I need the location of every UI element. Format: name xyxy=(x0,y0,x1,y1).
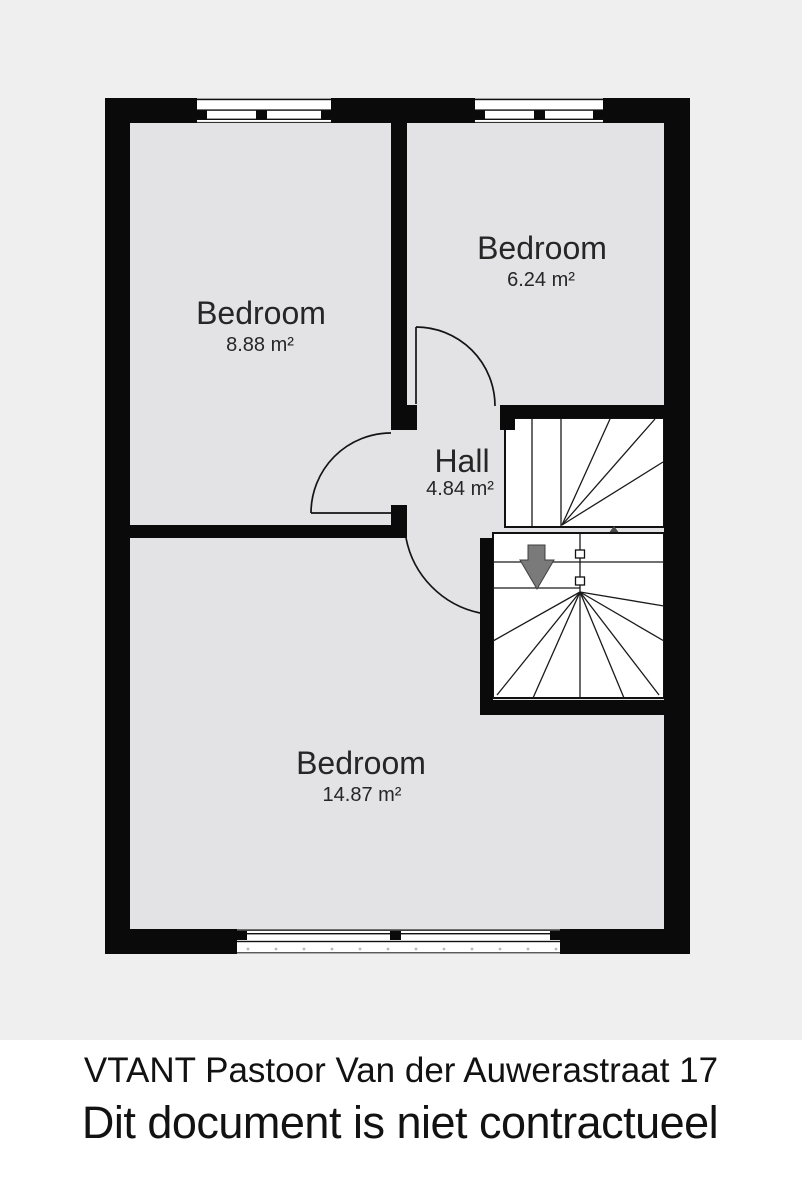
footer-disclaimer-line: Dit document is niet contractueel xyxy=(82,1097,718,1148)
room-area: 6.24 m² xyxy=(507,269,575,291)
footer-address-line: VTANT Pastoor Van der Auwerastraat 17 xyxy=(84,1051,718,1090)
room-name: Bedroom xyxy=(477,230,607,266)
window-top-left xyxy=(197,98,331,123)
floorplan-page: Bedroom 8.88 m² Bedroom 6.24 m² Hall 4.8… xyxy=(0,0,802,1200)
room-area: 14.87 m² xyxy=(323,784,402,806)
room-area: 4.84 m² xyxy=(426,478,494,500)
room-name: Hall xyxy=(434,443,489,479)
window-bottom xyxy=(237,929,560,954)
room-area: 8.88 m² xyxy=(226,334,294,356)
room-name: Bedroom xyxy=(196,295,326,331)
window-top-right xyxy=(475,98,603,123)
room-label-hall: Hall 4.84 m² xyxy=(426,443,494,500)
stairs-lower-flight xyxy=(493,533,664,698)
stairs-upper-flight xyxy=(505,418,664,527)
room-name: Bedroom xyxy=(296,745,426,781)
footer: VTANT Pastoor Van der Auwerastraat 17 Di… xyxy=(82,1051,718,1148)
staircase xyxy=(493,418,664,698)
floorplan-drawing: Bedroom 8.88 m² Bedroom 6.24 m² Hall 4.8… xyxy=(0,0,802,1200)
